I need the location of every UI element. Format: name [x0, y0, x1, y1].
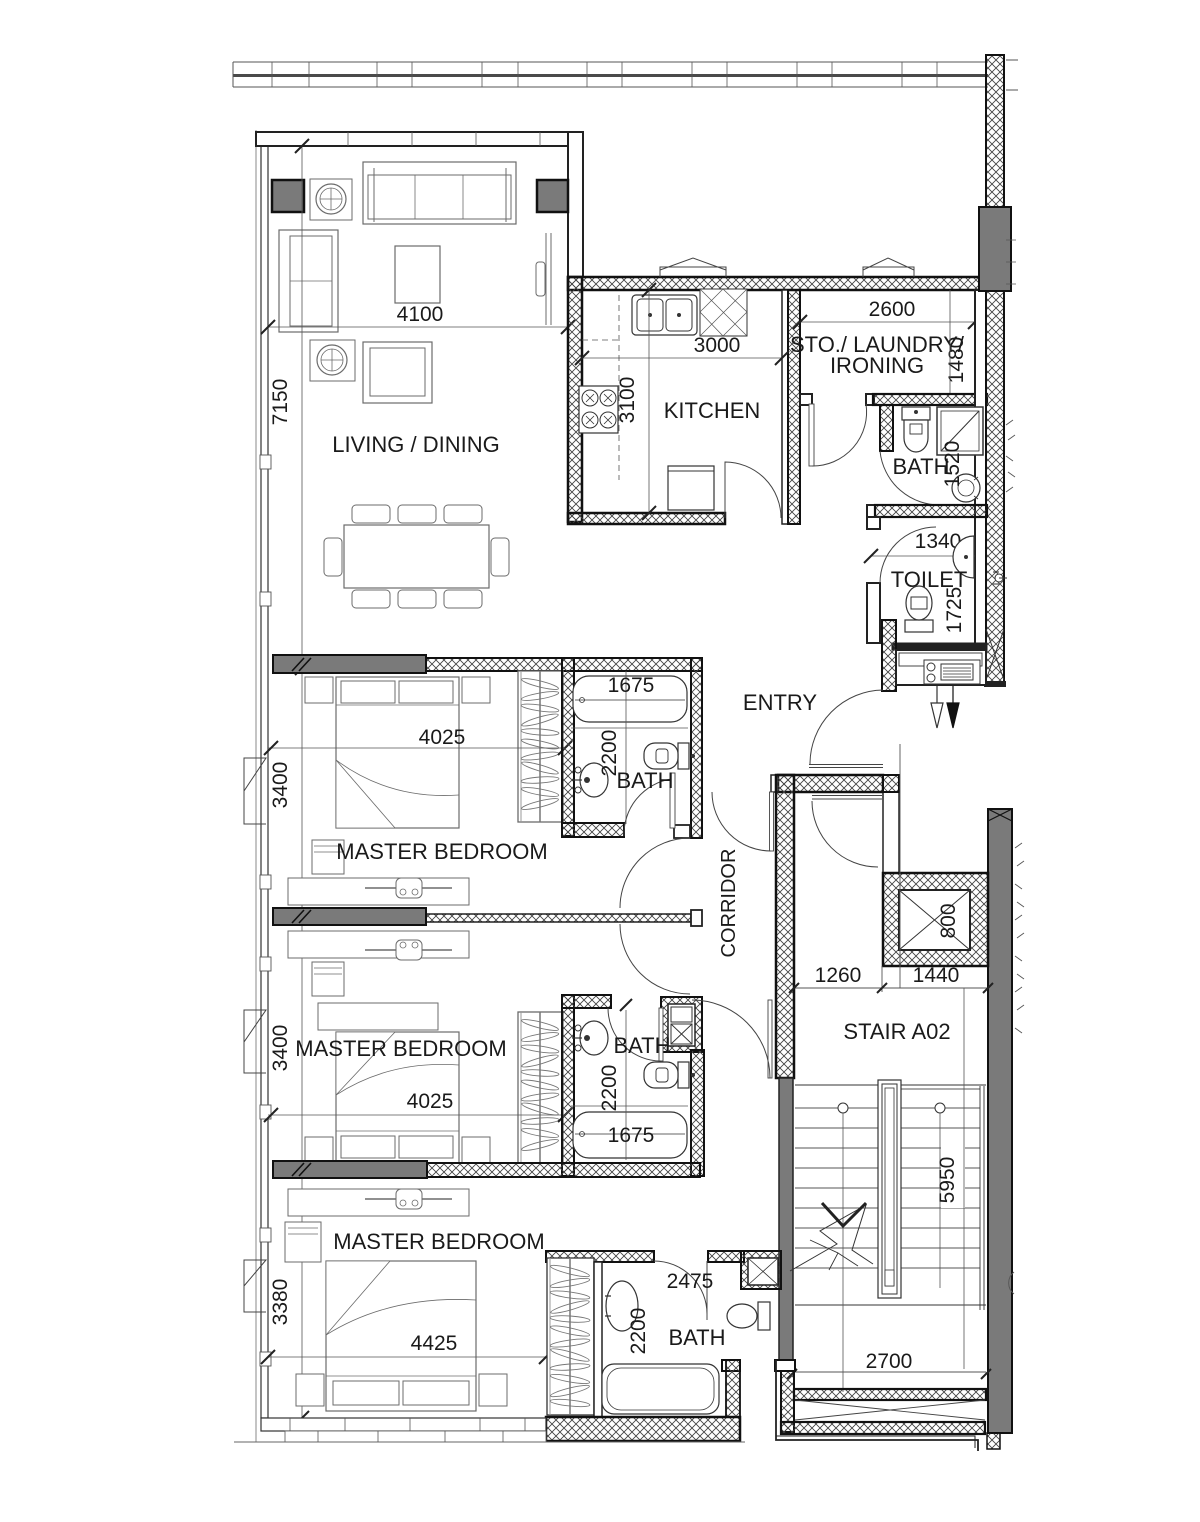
svg-text:4100: 4100 — [397, 303, 444, 326]
svg-text:CORRIDOR: CORRIDOR — [718, 849, 740, 958]
svg-text:2200: 2200 — [598, 1065, 621, 1112]
svg-text:3100: 3100 — [616, 377, 639, 424]
svg-text:STAIR A02: STAIR A02 — [843, 1019, 950, 1044]
svg-text:MASTER BEDROOM: MASTER BEDROOM — [336, 839, 547, 864]
svg-text:4025: 4025 — [407, 1090, 454, 1113]
svg-text:1260: 1260 — [815, 964, 862, 987]
svg-text:2200: 2200 — [627, 1308, 650, 1355]
svg-text:KITCHEN: KITCHEN — [664, 398, 761, 423]
svg-text:MASTER BEDROOM: MASTER BEDROOM — [295, 1036, 506, 1061]
svg-text:3380: 3380 — [269, 1279, 292, 1326]
svg-text:BATH: BATH — [616, 768, 673, 793]
svg-text:2600: 2600 — [869, 298, 916, 321]
svg-text:BATH: BATH — [668, 1325, 725, 1350]
svg-text:ENTRY: ENTRY — [743, 690, 817, 715]
svg-text:1520: 1520 — [941, 441, 964, 488]
svg-text:4425: 4425 — [411, 1332, 458, 1355]
svg-text:3400: 3400 — [269, 762, 292, 809]
svg-text:1480: 1480 — [945, 337, 968, 384]
svg-text:800: 800 — [937, 903, 960, 938]
svg-text:5950: 5950 — [936, 1157, 959, 1204]
svg-text:3000: 3000 — [694, 334, 741, 357]
svg-text:1440: 1440 — [913, 964, 960, 987]
svg-text:1675: 1675 — [608, 674, 655, 697]
svg-text:3400: 3400 — [269, 1025, 292, 1072]
svg-text:MASTER BEDROOM: MASTER BEDROOM — [333, 1229, 544, 1254]
svg-text:IRONING: IRONING — [830, 353, 924, 378]
svg-text:2475: 2475 — [667, 1270, 714, 1293]
svg-text:LIVING / DINING: LIVING / DINING — [332, 432, 499, 457]
svg-text:2700: 2700 — [866, 1350, 913, 1373]
svg-text:7150: 7150 — [269, 379, 292, 426]
svg-text:BATH: BATH — [613, 1033, 670, 1058]
svg-text:4025: 4025 — [419, 726, 466, 749]
svg-text:1725: 1725 — [943, 587, 966, 634]
svg-text:1675: 1675 — [608, 1124, 655, 1147]
